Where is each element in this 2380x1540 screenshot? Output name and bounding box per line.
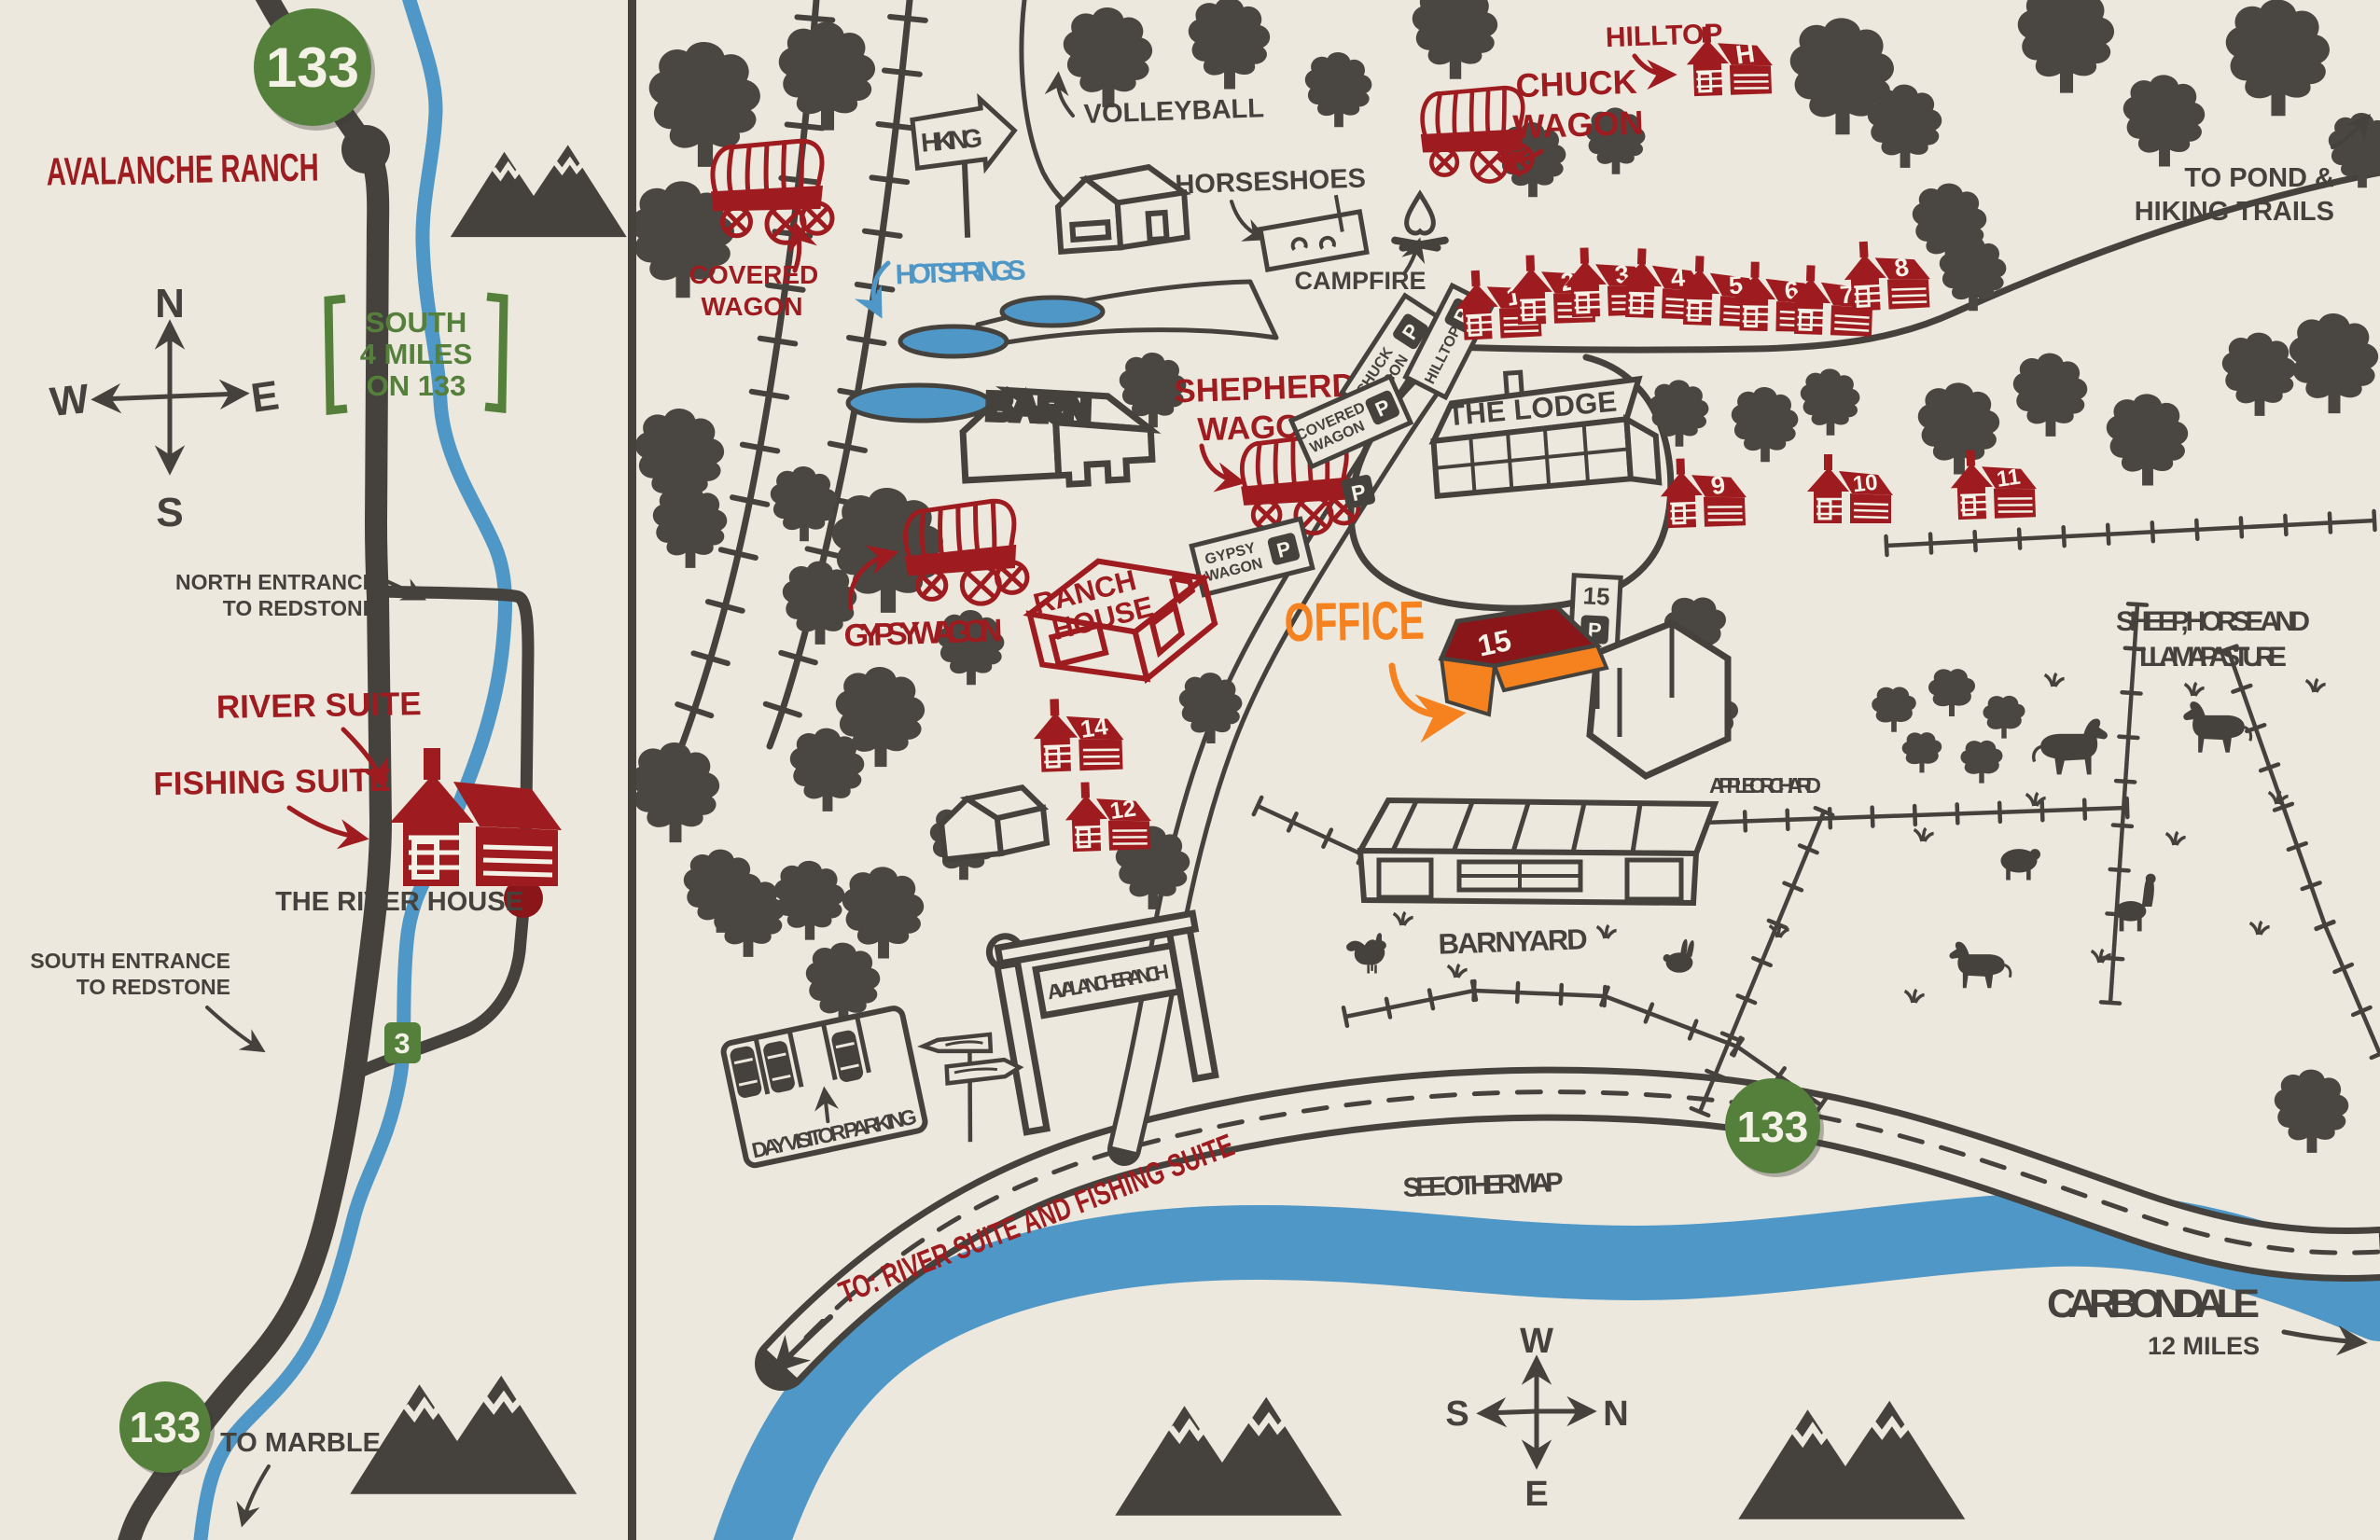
parking-p-badge: P bbox=[1341, 474, 1376, 509]
compass-right-w: W bbox=[1520, 1322, 1553, 1361]
compass-left-n: N bbox=[155, 281, 185, 326]
parking-stall-plain: P bbox=[1341, 474, 1376, 509]
fishing-suite-label: FISHING SUITE bbox=[153, 762, 391, 802]
office-roof-15: 15 bbox=[1475, 623, 1514, 663]
covered-wagon-l2: WAGON bbox=[702, 292, 803, 321]
north-entrance-l1: NORTH ENTRANCE bbox=[175, 570, 377, 594]
ranch-map: HOT SPRINGS 133 AVALANCHE RANCH N S W bbox=[0, 0, 2380, 1540]
south-entrance-l1: SOUTH ENTRANCE bbox=[30, 949, 230, 973]
cabin-number: 10 bbox=[1852, 470, 1879, 498]
south-entrance-l2: TO REDSTONE bbox=[77, 975, 230, 999]
hilltop-cabin-h: H bbox=[1733, 38, 1756, 70]
miles-note-l1: SOUTH bbox=[366, 306, 467, 339]
redstone-town-dot bbox=[341, 125, 390, 173]
compass-right-s: S bbox=[1445, 1394, 1468, 1434]
barn-roof-text: BARN bbox=[985, 386, 1091, 431]
carbondale-miles: 12 MILES bbox=[2148, 1332, 2260, 1360]
cabin-number: 14 bbox=[1079, 712, 1109, 743]
chuck-wagon-l1: CHUCK bbox=[1515, 62, 1637, 105]
panel-divider bbox=[628, 0, 636, 1540]
carbondale-label: CARBONDALE bbox=[2047, 1282, 2260, 1326]
north-entrance-l2: TO REDSTONE bbox=[223, 596, 377, 620]
cabin-number: 12 bbox=[1108, 795, 1137, 825]
chuck-wagon-l2: WAGON bbox=[1512, 104, 1644, 146]
to-marble-label: TO MARBLE bbox=[220, 1428, 381, 1458]
gypsy-wagon-label: GYPSY WAGON bbox=[843, 613, 1003, 654]
route-3-badge: 3 bbox=[384, 1022, 421, 1063]
pasture-l2: LLAMA PASTURE bbox=[2139, 642, 2287, 673]
route-3-text: 3 bbox=[394, 1027, 410, 1060]
barnyard-label: BARNYARD bbox=[1438, 923, 1588, 961]
badge-bottom-text: 133 bbox=[130, 1403, 202, 1451]
left-title: AVALANCHE RANCH bbox=[46, 145, 319, 193]
miles-note-l2: 4 MILES bbox=[360, 338, 473, 370]
hot-springs-label: HOT SPRINGS bbox=[895, 256, 1026, 291]
compass-left-w: W bbox=[48, 376, 91, 425]
pasture-l1: SHEEP, HORSE AND bbox=[2116, 606, 2310, 637]
compass-right-e: E bbox=[1524, 1475, 1548, 1514]
compass-right-n: N bbox=[1603, 1394, 1628, 1434]
river-suite-label: RIVER SUITE bbox=[216, 686, 422, 726]
badge-hwy-text: 133 bbox=[1737, 1103, 1809, 1151]
miles-note-l3: ON 133 bbox=[367, 369, 466, 402]
cabin-number: 11 bbox=[1995, 465, 2022, 493]
volleyball-label: VOLLEYBALL bbox=[1083, 93, 1264, 130]
hiking-sign-text: HIKING bbox=[920, 123, 983, 158]
to-pond-l2: HIKING TRAILS bbox=[2135, 197, 2334, 227]
to-pond-l1: TO POND & bbox=[2184, 163, 2334, 193]
river-house-label: THE RIVER HOUSE bbox=[275, 887, 523, 917]
badge-top-text: 133 bbox=[266, 36, 359, 99]
barnyard-building bbox=[1360, 800, 1715, 903]
compass-left-s: S bbox=[156, 490, 183, 535]
apple-orchard-label: APPLE ORCHARD bbox=[1709, 773, 1821, 798]
office-label: OFFICE bbox=[1284, 590, 1425, 654]
see-other-map-label: SEE OTHER MAP bbox=[1402, 1168, 1564, 1203]
stall-15-text: 15 bbox=[1582, 581, 1610, 610]
